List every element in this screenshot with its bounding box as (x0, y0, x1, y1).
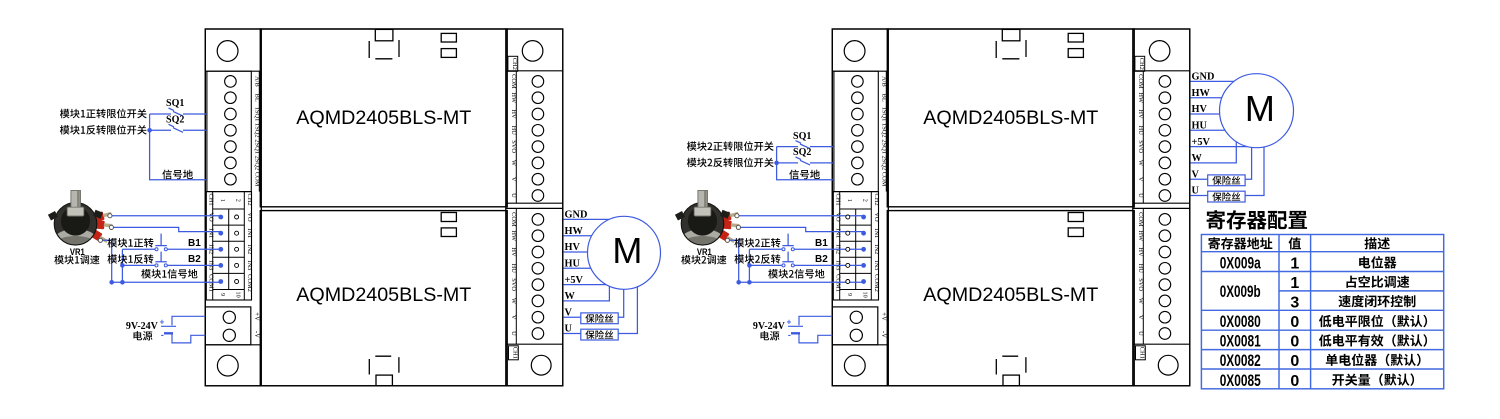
svg-text:COM2: COM2 (246, 274, 253, 292)
svg-text:+: + (160, 318, 165, 327)
svg-text:VO: VO (873, 212, 880, 222)
svg-text:M: M (1245, 88, 1275, 129)
svg-text:0X0085: 0X0085 (1220, 371, 1261, 390)
svg-text:9: 9 (219, 293, 226, 296)
svg-text:U: U (1137, 331, 1144, 336)
svg-text:0X009a: 0X009a (1220, 254, 1261, 273)
svg-text:SQ2: SQ2 (166, 115, 184, 126)
svg-text:9: 9 (846, 293, 853, 296)
svg-text:HU: HU (565, 259, 581, 270)
svg-text:W: W (1137, 298, 1144, 305)
svg-text:HV: HV (565, 242, 581, 253)
svg-text:1SQ2: 1SQ2 (253, 123, 260, 138)
svg-text:COM: COM (510, 212, 517, 227)
svg-text:0: 0 (1290, 314, 1299, 331)
svg-text:W: W (1192, 153, 1203, 164)
svg-text:B1: B1 (188, 238, 201, 249)
svg-text:SVO: SVO (1137, 278, 1144, 291)
svg-text:U: U (565, 324, 573, 335)
svg-text:+: + (787, 318, 792, 327)
svg-text:-V: -V (253, 331, 260, 338)
svg-text:CH1: CH1 (835, 193, 842, 205)
svg-text:GND: GND (565, 210, 588, 221)
svg-text:HW: HW (1192, 88, 1211, 99)
svg-text:+V: +V (253, 312, 260, 321)
svg-text:COM: COM (510, 74, 517, 89)
svg-text:HW: HW (510, 92, 517, 104)
svg-text:-V: -V (880, 331, 887, 338)
svg-text:2SQ2: 2SQ2 (253, 156, 260, 171)
svg-text:SQ2: SQ2 (793, 147, 811, 158)
svg-text:A/B: A/B (253, 76, 260, 87)
svg-text:HU: HU (1137, 264, 1144, 274)
svg-text:0X009b: 0X009b (1220, 282, 1261, 301)
svg-text:SQ1: SQ1 (166, 98, 184, 109)
svg-text:V: V (1192, 169, 1200, 180)
svg-text:HW: HW (510, 230, 517, 242)
svg-text:BL: BL (253, 94, 260, 102)
svg-text:CH1: CH1 (208, 193, 215, 205)
svg-text:U: U (1192, 186, 1200, 197)
svg-text:HW: HW (565, 226, 584, 237)
svg-text:W: W (510, 160, 517, 167)
svg-text:HV: HV (1137, 247, 1144, 257)
svg-text:-: - (788, 330, 791, 340)
svg-text:2: 2 (235, 199, 242, 202)
svg-text:CH2: CH2 (873, 193, 880, 205)
svg-text:HV: HV (1137, 109, 1144, 119)
svg-text:HU: HU (510, 264, 517, 274)
svg-text:HW: HW (1137, 230, 1144, 242)
svg-text:9V-24V: 9V-24V (126, 321, 159, 332)
svg-text:B2: B2 (815, 254, 828, 265)
svg-text:1: 1 (1290, 256, 1299, 273)
svg-text:CH2: CH2 (511, 58, 518, 70)
svg-text:+V: +V (880, 312, 887, 321)
svg-text:1: 1 (846, 199, 853, 202)
svg-text:SVO: SVO (1137, 140, 1144, 153)
svg-text:1SQ1: 1SQ1 (253, 107, 260, 122)
svg-text:3: 3 (1290, 294, 1299, 311)
svg-text:2SQ1: 2SQ1 (253, 139, 260, 154)
svg-text:0X0080: 0X0080 (1220, 312, 1261, 331)
svg-text:1SQ1: 1SQ1 (880, 107, 887, 122)
svg-text:2SQ2: 2SQ2 (880, 156, 887, 171)
svg-text:A/B: A/B (880, 76, 887, 87)
svg-text:COM: COM (253, 172, 260, 187)
svg-text:IN1: IN1 (208, 228, 215, 238)
svg-text:1: 1 (219, 199, 226, 202)
svg-text:CH2: CH2 (1138, 58, 1145, 70)
svg-text:COM2: COM2 (873, 274, 880, 292)
svg-text:V: V (565, 307, 573, 318)
svg-text:BL: BL (880, 94, 887, 102)
svg-text:IN1: IN1 (835, 228, 842, 238)
svg-text:2SQ1: 2SQ1 (880, 139, 887, 154)
svg-text:+5V: +5V (1192, 137, 1211, 148)
svg-text:0: 0 (1290, 334, 1299, 351)
svg-text:CH1: CH1 (1138, 347, 1145, 359)
svg-text:COM1: COM1 (208, 274, 215, 292)
svg-text:VO: VO (835, 212, 842, 222)
svg-text:W: W (1137, 160, 1144, 167)
svg-text:HW: HW (1137, 92, 1144, 104)
svg-text:SVO: SVO (510, 140, 517, 153)
svg-text:U: U (510, 193, 517, 198)
svg-text:U: U (510, 331, 517, 336)
svg-text:HV: HV (510, 109, 517, 119)
svg-text:B1: B1 (815, 238, 828, 249)
svg-text:AQMD2405BLS-MT: AQMD2405BLS-MT (296, 107, 471, 129)
svg-text:0X0081: 0X0081 (1220, 332, 1261, 351)
svg-text:W: W (510, 298, 517, 305)
svg-text:V: V (1137, 315, 1144, 320)
svg-text:IN1: IN1 (873, 228, 880, 238)
svg-text:COM1: COM1 (835, 274, 842, 292)
svg-text:VO: VO (208, 212, 215, 222)
svg-text:0X0082: 0X0082 (1220, 351, 1261, 370)
svg-text:10: 10 (235, 292, 242, 298)
svg-text:HU: HU (1137, 126, 1144, 136)
svg-text:+5V: +5V (565, 275, 584, 286)
svg-text:V: V (510, 315, 517, 320)
svg-text:IN3: IN3 (246, 260, 253, 270)
svg-text:IN2: IN2 (873, 244, 880, 254)
svg-text:10: 10 (862, 292, 869, 298)
svg-text:9V-24V: 9V-24V (753, 321, 786, 332)
svg-text:B2: B2 (188, 254, 201, 265)
svg-text:CH1: CH1 (511, 347, 518, 359)
svg-text:CH2: CH2 (246, 193, 253, 205)
svg-text:2: 2 (862, 199, 869, 202)
svg-text:W: W (565, 291, 576, 302)
svg-text:U: U (1137, 193, 1144, 198)
svg-text:SQ1: SQ1 (793, 131, 811, 142)
svg-text:SVO: SVO (510, 278, 517, 291)
svg-text:VO: VO (246, 212, 253, 222)
svg-text:COM: COM (1137, 74, 1144, 89)
svg-text:HV: HV (1192, 104, 1208, 115)
svg-text:0: 0 (1290, 373, 1299, 390)
svg-text:M: M (612, 230, 642, 271)
svg-text:0: 0 (1290, 353, 1299, 370)
svg-text:V: V (1137, 177, 1144, 182)
svg-text:GND: GND (1192, 72, 1215, 83)
svg-text:1: 1 (1290, 275, 1299, 292)
svg-text:HU: HU (1192, 121, 1208, 132)
svg-text:HV: HV (510, 247, 517, 257)
svg-text:COM: COM (1137, 212, 1144, 227)
svg-text:HU: HU (510, 126, 517, 136)
svg-text:IN1: IN1 (246, 228, 253, 238)
svg-text:IN2: IN2 (246, 244, 253, 254)
svg-text:VR1: VR1 (697, 247, 712, 258)
svg-text:AQMD2405BLS-MT: AQMD2405BLS-MT (923, 107, 1098, 129)
svg-text:IN3: IN3 (873, 260, 880, 270)
svg-text:AQMD2405BLS-MT: AQMD2405BLS-MT (923, 284, 1098, 306)
svg-text:V: V (510, 177, 517, 182)
svg-text:AQMD2405BLS-MT: AQMD2405BLS-MT (296, 284, 471, 306)
svg-text:1SQ2: 1SQ2 (880, 123, 887, 138)
svg-text:COM: COM (880, 172, 887, 187)
svg-text:-: - (161, 330, 164, 340)
